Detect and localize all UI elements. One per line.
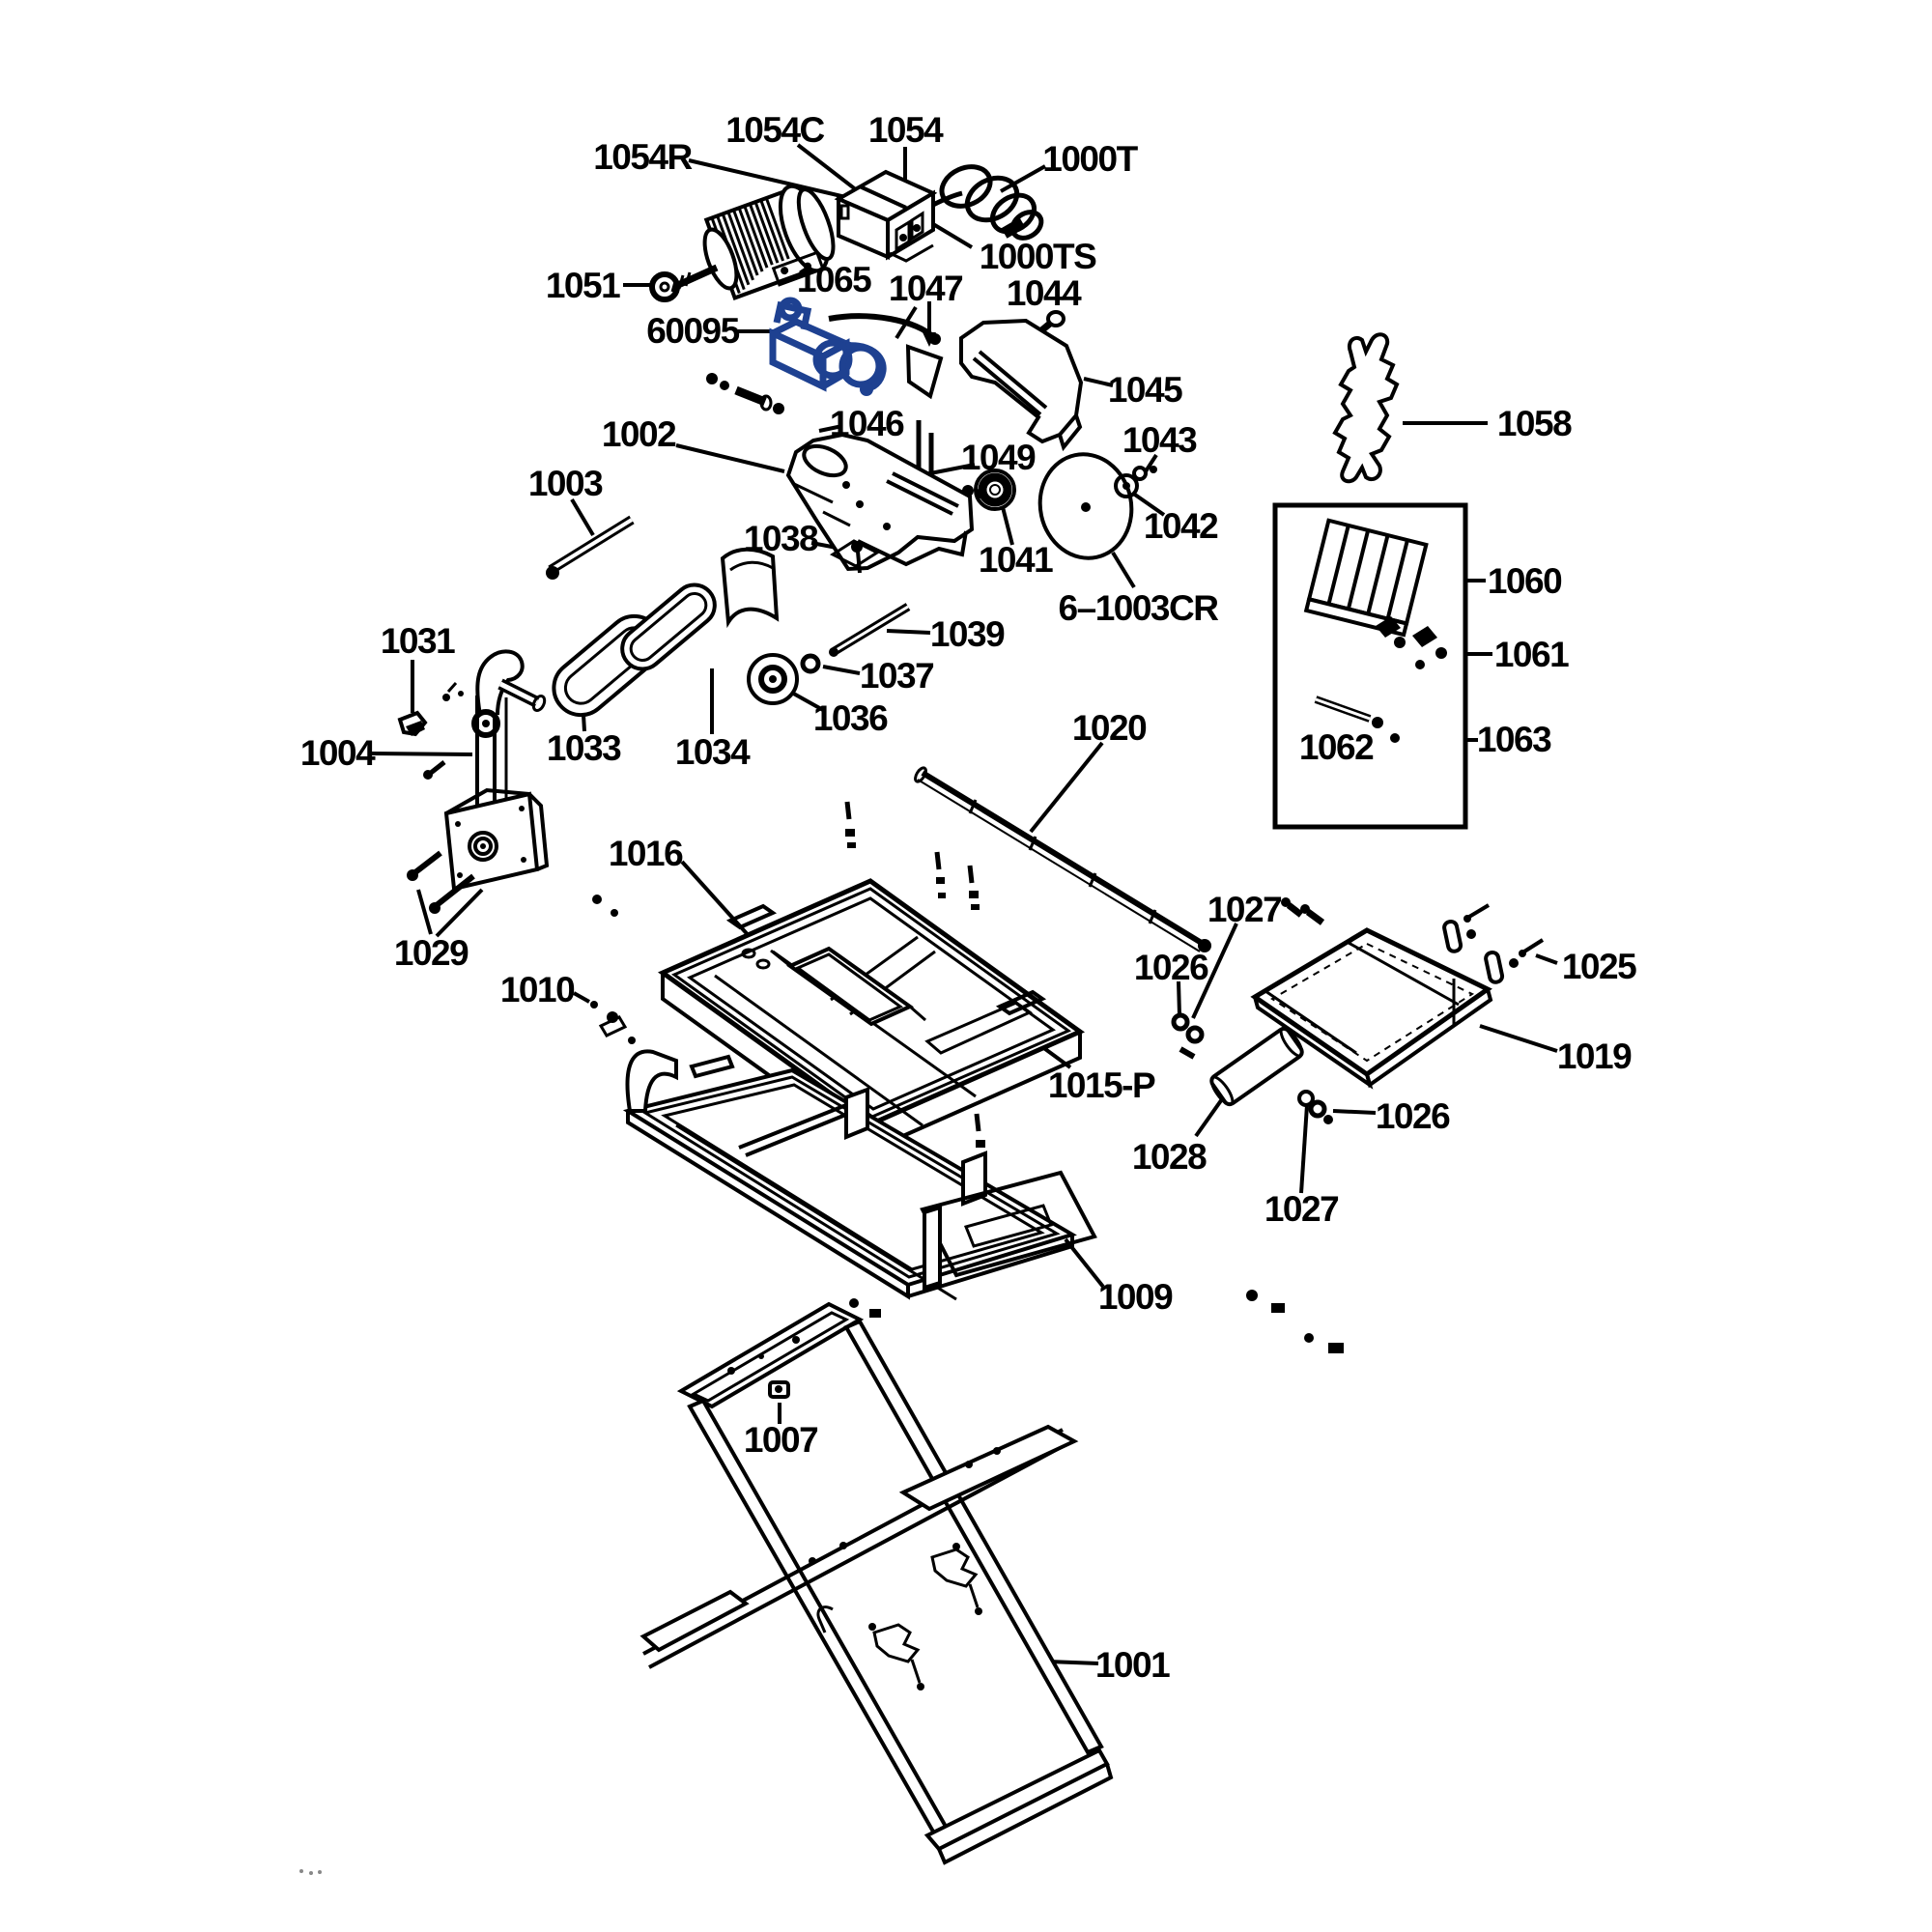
svg-text:1038: 1038	[744, 519, 818, 558]
svg-text:1025: 1025	[1562, 947, 1636, 986]
svg-text:1046: 1046	[830, 404, 904, 443]
svg-text:1001: 1001	[1095, 1645, 1170, 1685]
svg-text:1049: 1049	[961, 438, 1036, 477]
svg-text:1042: 1042	[1144, 506, 1218, 546]
svg-text:1039: 1039	[930, 614, 1005, 654]
svg-text:1003: 1003	[528, 464, 603, 503]
svg-text:1054C: 1054C	[725, 110, 824, 150]
svg-text:1010: 1010	[500, 970, 575, 1009]
svg-text:1034: 1034	[675, 732, 751, 772]
svg-text:6–1003CR: 6–1003CR	[1059, 588, 1219, 628]
svg-text:1020: 1020	[1072, 708, 1147, 748]
svg-text:1062: 1062	[1299, 727, 1374, 767]
svg-text:1061: 1061	[1494, 635, 1569, 674]
svg-text:1028: 1028	[1132, 1137, 1207, 1177]
svg-text:1054: 1054	[868, 110, 944, 150]
svg-text:1044: 1044	[1007, 273, 1082, 313]
svg-text:1026: 1026	[1134, 948, 1208, 987]
svg-text:1054R: 1054R	[593, 137, 692, 177]
svg-text:1037: 1037	[860, 656, 933, 696]
svg-text:1019: 1019	[1557, 1037, 1632, 1076]
svg-text:1043: 1043	[1122, 420, 1197, 460]
svg-text:1000TS: 1000TS	[980, 237, 1096, 276]
svg-text:1027: 1027	[1264, 1189, 1338, 1229]
svg-text:1015-P: 1015-P	[1048, 1065, 1155, 1105]
svg-text:60095: 60095	[646, 311, 739, 351]
svg-text:1016: 1016	[609, 834, 683, 873]
svg-text:1007: 1007	[744, 1420, 817, 1460]
svg-text:1000T: 1000T	[1042, 139, 1138, 179]
svg-text:1031: 1031	[381, 621, 455, 661]
svg-text:1004: 1004	[300, 733, 376, 773]
svg-text:1045: 1045	[1108, 370, 1182, 410]
svg-text:1009: 1009	[1098, 1277, 1173, 1317]
svg-text:1047: 1047	[889, 269, 962, 308]
svg-text:1002: 1002	[602, 414, 676, 454]
svg-text:1026: 1026	[1376, 1096, 1450, 1136]
svg-text:1029: 1029	[394, 933, 469, 973]
svg-text:1063: 1063	[1477, 720, 1551, 759]
svg-text:1060: 1060	[1488, 561, 1562, 601]
svg-text:1027: 1027	[1207, 890, 1281, 929]
svg-text:1058: 1058	[1497, 404, 1572, 443]
svg-text:1051: 1051	[546, 266, 620, 305]
svg-text:1033: 1033	[547, 728, 621, 768]
svg-text:1036: 1036	[813, 698, 888, 738]
svg-text:1041: 1041	[979, 540, 1053, 580]
svg-text:1065: 1065	[797, 260, 871, 299]
